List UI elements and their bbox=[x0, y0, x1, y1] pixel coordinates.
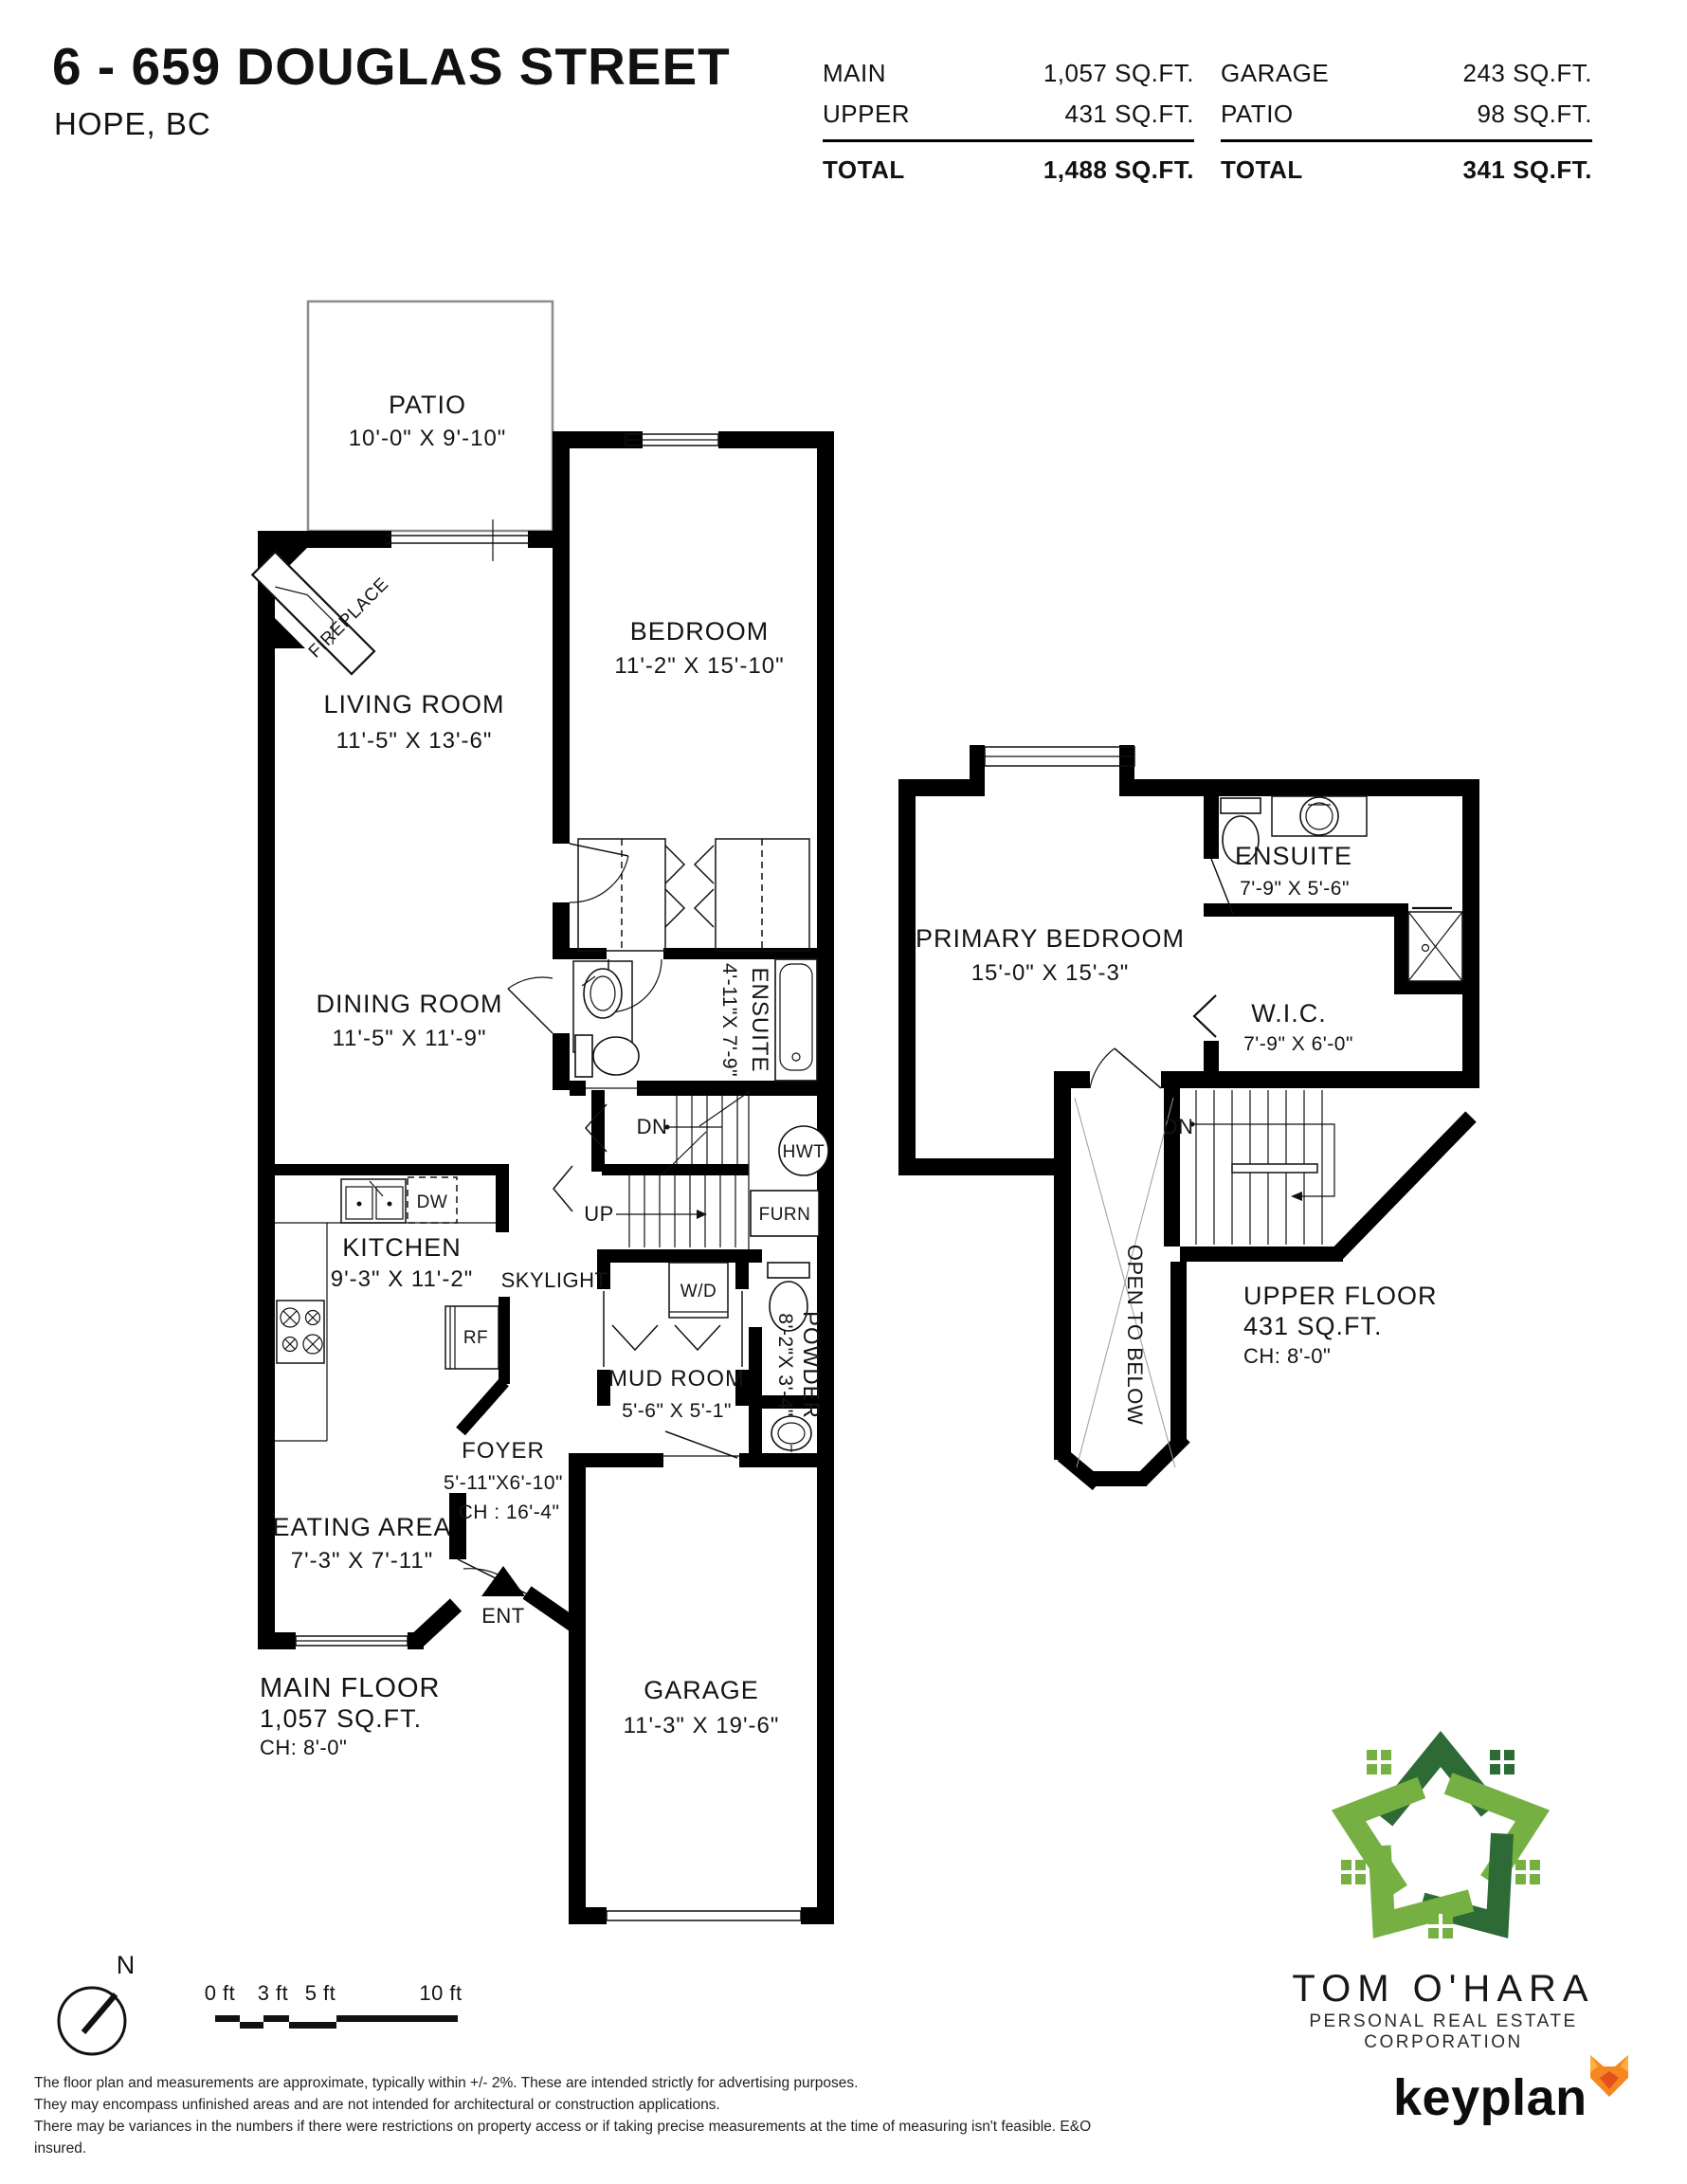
sink-icon bbox=[771, 1416, 811, 1452]
kitchen-sink-icon bbox=[341, 1179, 406, 1223]
scale-0: 0 ft bbox=[205, 1981, 236, 2005]
upper-ensuite-label: ENSUITE bbox=[1235, 842, 1352, 870]
furn-label: FURN bbox=[759, 1205, 811, 1225]
dining-door-icon bbox=[508, 977, 553, 1033]
eating-area-dims: 7'-3" X 7'-11" bbox=[291, 1548, 434, 1574]
patio-dims: 10'-0" X 9'-10" bbox=[349, 426, 507, 451]
eating-window-icon bbox=[296, 1636, 408, 1646]
ent-label: ENT bbox=[481, 1604, 525, 1628]
disclaimer: The floor plan and measurements are appr… bbox=[34, 2072, 1134, 2159]
floorplan-page: 6 - 659 DOUGLAS STREET HOPE, BC MAIN 1,0… bbox=[0, 0, 1687, 2184]
living-room-label: LIVING ROOM bbox=[323, 690, 504, 719]
dining-room-dims: 11'-5" X 11'-9" bbox=[332, 1026, 486, 1051]
garage-door-icon bbox=[607, 1911, 801, 1920]
ensuite-fixtures bbox=[573, 959, 817, 1081]
hwt-label: HWT bbox=[783, 1142, 825, 1162]
bathtub-icon bbox=[775, 959, 817, 1081]
primary-bedroom-label: PRIMARY BEDROOM bbox=[916, 924, 1185, 953]
brand-star-logo bbox=[1331, 1749, 1548, 1957]
brand-name: TOM O'HARA bbox=[1251, 1968, 1636, 2011]
patio-label: PATIO bbox=[389, 391, 466, 419]
wd-label: W/D bbox=[680, 1282, 717, 1301]
upper-ensuite-dims: 7'-9" X 5'-6" bbox=[1240, 878, 1350, 900]
shower-icon bbox=[1408, 908, 1462, 981]
mudroom-label: MUD ROOM bbox=[608, 1366, 745, 1392]
disclaimer-line: There may be variances in the numbers if… bbox=[34, 2116, 1134, 2159]
primary-bedroom-dims: 15'-0" X 15'-3" bbox=[971, 960, 1130, 986]
main-floor-area: 1,057 SQ.FT. bbox=[260, 1704, 422, 1733]
patio-door-icon bbox=[386, 519, 531, 561]
upper-floor-plan: PRIMARY BEDROOM 15'-0" X 15'-3" ENSUITE … bbox=[898, 745, 1479, 1486]
foyer-ch: CH : 16'-4" bbox=[459, 1501, 560, 1523]
rf-label: RF bbox=[463, 1328, 488, 1348]
brand-tagline: PERSONAL REAL ESTATE CORPORATION bbox=[1232, 2011, 1655, 2053]
stove-icon bbox=[277, 1301, 324, 1363]
main-floor-plan: PATIO 10'-0" X 9'-10" FIREPLACE BEDROOM … bbox=[252, 301, 834, 1924]
upper-floor-name: UPPER FLOOR bbox=[1243, 1282, 1438, 1310]
scale-bar: 0 ft 3 ft 5 ft 10 ft bbox=[205, 1981, 463, 2029]
living-room-dims: 11'-5" X 13'-6" bbox=[336, 728, 493, 754]
closets bbox=[578, 839, 809, 951]
primary-window-icon bbox=[985, 747, 1134, 766]
mudroom-door-leafs bbox=[604, 1291, 742, 1367]
north-arrow-icon: N bbox=[59, 1951, 136, 2054]
main-floor-name: MAIN FLOOR bbox=[260, 1673, 440, 1703]
upper-floor-ch: CH: 8'-0" bbox=[1243, 1344, 1331, 1368]
open-to-below-label: OPEN TO BELOW bbox=[1123, 1245, 1147, 1425]
dw-label: DW bbox=[417, 1192, 448, 1212]
powder-label: POWDER bbox=[798, 1311, 824, 1419]
garage-label: GARAGE bbox=[644, 1676, 759, 1704]
sink-icon bbox=[1272, 796, 1367, 836]
keyplan-fox-icon bbox=[1590, 2055, 1628, 2097]
garage-entry-door-icon bbox=[662, 1431, 739, 1458]
up-label: UP bbox=[584, 1202, 614, 1226]
kitchen-fixtures bbox=[275, 1177, 499, 1441]
scale-3: 3 ft bbox=[258, 1981, 289, 2005]
mudroom-bifold-doors bbox=[612, 1325, 720, 1350]
keyplan-logo: keyplan bbox=[1393, 2068, 1587, 2127]
foyer-dims: 5'-11"X6'-10" bbox=[444, 1472, 563, 1494]
main-floor-ch: CH: 8'-0" bbox=[260, 1736, 347, 1759]
upper-floor-area: 431 SQ.FT. bbox=[1243, 1312, 1383, 1340]
bedroom-dims: 11'-2" X 15'-10" bbox=[614, 653, 784, 679]
dining-room-label: DINING ROOM bbox=[317, 990, 503, 1018]
eating-area-label: EATING AREA bbox=[272, 1513, 451, 1541]
dn-label: DN bbox=[637, 1115, 668, 1138]
disclaimer-line: They may encompass unfinished areas and … bbox=[34, 2094, 1134, 2116]
scale-10: 10 ft bbox=[419, 1981, 462, 2005]
upper-dn-label: DN bbox=[1163, 1115, 1194, 1138]
north-label: N bbox=[117, 1951, 136, 1979]
ensuite-dims: 4'-11"X 7'-9" bbox=[718, 963, 740, 1077]
disclaimer-line: The floor plan and measurements are appr… bbox=[34, 2072, 1134, 2094]
upper-floor-openings bbox=[985, 747, 1233, 1088]
skylight-label: SKYLIGHT bbox=[501, 1268, 608, 1292]
stairs-upper bbox=[1190, 1090, 1335, 1245]
kitchen-label: KITCHEN bbox=[342, 1233, 462, 1262]
wic-door-icon bbox=[1194, 995, 1216, 1037]
floorplan-drawing: PATIO 10'-0" X 9'-10" FIREPLACE BEDROOM … bbox=[0, 0, 1687, 2184]
ensuite-label: ENSUITE bbox=[747, 967, 772, 1072]
scale-5: 5 ft bbox=[305, 1981, 336, 2005]
kitchen-dims: 9'-3" X 11'-2" bbox=[331, 1266, 474, 1292]
mudroom-dims: 5'-6" X 5'-1" bbox=[622, 1400, 732, 1422]
foyer-label: FOYER bbox=[462, 1438, 545, 1464]
wic-dims: 7'-9" X 6'-0" bbox=[1243, 1033, 1353, 1055]
powder-dims: 8'-2"X 3'-4" bbox=[774, 1313, 796, 1416]
toilet-icon bbox=[575, 1035, 639, 1077]
garage-dims: 11'-3" X 19'-6" bbox=[624, 1713, 780, 1738]
bedroom-label: BEDROOM bbox=[630, 617, 770, 646]
wic-label: W.I.C. bbox=[1251, 999, 1327, 1028]
primary-door-icon bbox=[1090, 1048, 1161, 1088]
